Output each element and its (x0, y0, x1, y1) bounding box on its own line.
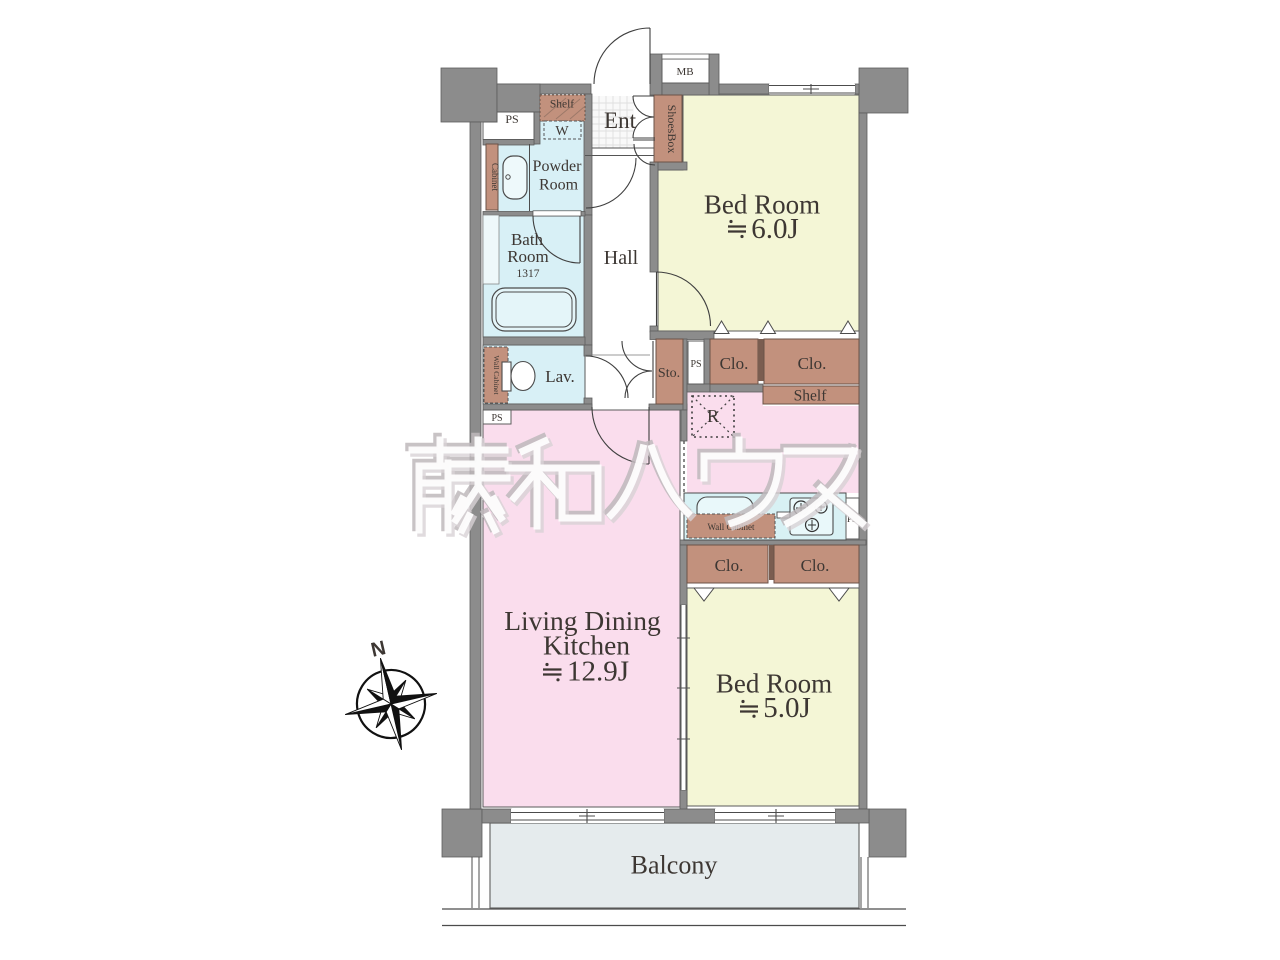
svg-text:5.0J: 5.0J (763, 692, 811, 724)
svg-text:Wall Cabinet: Wall Cabinet (492, 355, 501, 395)
svg-text:Room: Room (539, 177, 579, 194)
svg-text:6.0J: 6.0J (751, 213, 799, 245)
svg-text:Sto.: Sto. (658, 366, 680, 381)
svg-text:Ent: Ent (604, 108, 637, 133)
svg-text:Clo.: Clo. (720, 354, 749, 373)
svg-text:PS: PS (491, 413, 502, 424)
svg-text:Clo.: Clo. (715, 556, 744, 575)
svg-text:Hall: Hall (604, 247, 639, 269)
svg-text:PS: PS (690, 359, 701, 370)
svg-text:W: W (555, 124, 569, 139)
svg-text:R: R (707, 406, 719, 426)
svg-text:Clo.: Clo. (798, 354, 827, 373)
svg-text:PS: PS (505, 112, 518, 126)
svg-text:Clo.: Clo. (801, 556, 830, 575)
svg-text:Lav.: Lav. (545, 367, 575, 386)
svg-text:ShoesBox: ShoesBox (665, 105, 679, 154)
svg-text:12.9J: 12.9J (567, 656, 629, 688)
svg-text:Cabinet: Cabinet (490, 163, 500, 191)
svg-text:Shelf: Shelf (550, 99, 574, 111)
svg-text:1317: 1317 (517, 268, 540, 280)
svg-text:Shelf: Shelf (794, 388, 828, 405)
svg-text:MB: MB (676, 66, 693, 78)
svg-text:Balcony: Balcony (631, 851, 718, 880)
svg-text:Room: Room (507, 247, 549, 266)
svg-text:Powder: Powder (533, 158, 583, 175)
